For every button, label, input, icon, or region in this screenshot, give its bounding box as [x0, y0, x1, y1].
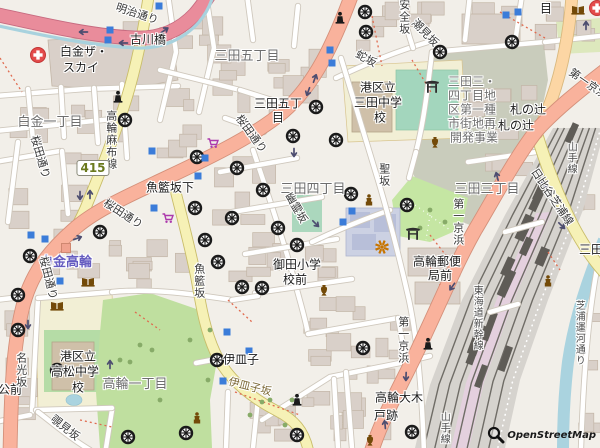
map-base-layer: [0, 0, 600, 448]
temple-dharma-wheel-icon: [330, 134, 342, 146]
temple-dharma-wheel-icon: [119, 114, 131, 126]
temple-dharma-wheel-icon: [291, 239, 303, 251]
temple-dharma-wheel-icon: [191, 151, 203, 163]
temple-dharma-wheel-icon: [24, 250, 36, 262]
magnifier-logo-icon: [487, 426, 505, 444]
osm-attribution-text: OpenStreetMap: [507, 430, 596, 441]
temple-dharma-wheel-icon: [51, 364, 63, 376]
subway-entrance-icon: [246, 348, 253, 355]
temple-dharma-wheel-icon: [189, 202, 201, 214]
temple-dharma-wheel-icon: [287, 130, 299, 142]
route-shield-number: 415: [80, 161, 105, 175]
temple-dharma-wheel-icon: [122, 431, 134, 443]
subway-entrance-icon: [28, 232, 35, 239]
subway-entrance-icon: [340, 219, 347, 226]
temple-dharma-wheel-icon: [12, 324, 24, 336]
subway-entrance-icon: [327, 47, 334, 54]
temple-dharma-wheel-icon: [310, 101, 322, 113]
temple-dharma-wheel-icon: [357, 342, 369, 354]
temple-dharma-wheel-icon: [231, 162, 243, 174]
subway-entrance-icon: [107, 27, 114, 34]
temple-dharma-wheel-icon: [236, 281, 248, 293]
temple-dharma-wheel-icon: [406, 426, 418, 438]
temple-dharma-wheel-icon: [506, 36, 518, 48]
map-canvas[interactable]: 白金一丁目三田五丁目三田四丁目三田三丁目高輪一丁目古川橋白金ザ・スカイ三田五丁目…: [0, 0, 600, 448]
subway-entrance-icon: [156, 3, 163, 10]
station-icon: [62, 244, 71, 253]
subway-entrance-icon: [329, 60, 336, 67]
temple-dharma-wheel-icon: [256, 282, 268, 294]
osm-attribution[interactable]: OpenStreetMap: [487, 426, 596, 444]
temple-dharma-wheel-icon: [94, 226, 106, 238]
subway-entrance-icon: [195, 173, 202, 180]
hospital-icon: [590, 1, 600, 16]
subway-entrance-icon: [105, 37, 112, 44]
hospital-icon: [31, 48, 46, 63]
subway-entrance-icon: [220, 378, 227, 385]
temple-dharma-wheel-icon: [211, 354, 223, 366]
temple-dharma-wheel-icon: [12, 289, 24, 301]
temple-dharma-wheel-icon: [359, 6, 371, 18]
temple-dharma-wheel-icon: [257, 184, 269, 196]
temple-dharma-wheel-icon: [434, 46, 446, 58]
subway-entrance-icon: [224, 329, 231, 336]
subway-entrance-icon: [151, 205, 158, 212]
temple-dharma-wheel-icon: [226, 212, 238, 224]
subway-entrance-icon: [202, 155, 209, 162]
temple-dharma-wheel-icon: [360, 26, 372, 38]
temple-dharma-wheel-icon: [345, 188, 357, 200]
temple-dharma-wheel-icon: [180, 427, 192, 439]
subway-entrance-icon: [503, 12, 510, 19]
temple-dharma-wheel-icon: [291, 429, 303, 441]
route-shield: 415: [76, 160, 109, 176]
temple-dharma-wheel-icon: [212, 256, 224, 268]
subway-entrance-icon: [57, 278, 64, 285]
subway-entrance-icon: [149, 148, 156, 155]
temple-dharma-wheel-icon: [401, 199, 413, 211]
temple-dharma-wheel-icon: [272, 222, 284, 234]
subway-entrance-icon: [42, 236, 49, 243]
subway-entrance-icon: [349, 208, 356, 215]
subway-entrance-icon: [515, 9, 522, 16]
temple-dharma-wheel-icon: [199, 234, 211, 246]
